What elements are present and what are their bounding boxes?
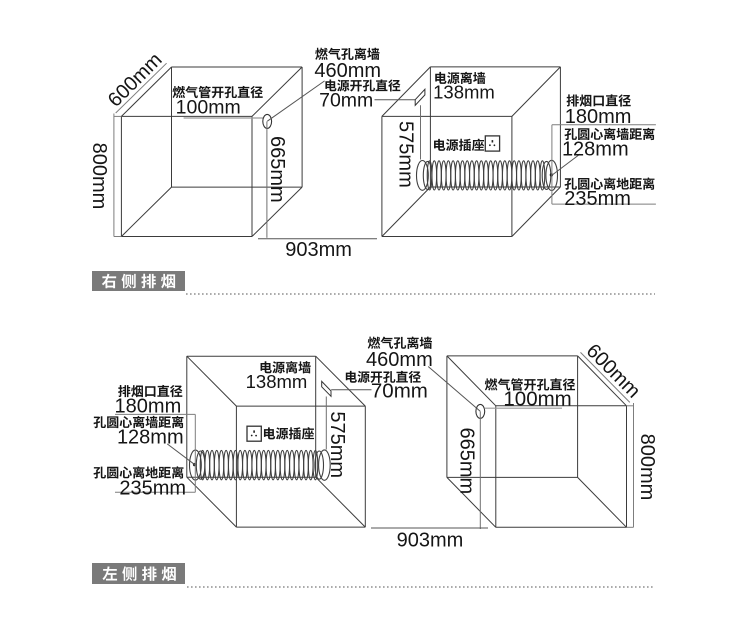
svg-text:800mm: 800mm	[88, 143, 110, 210]
svg-text:600mm: 600mm	[582, 340, 645, 403]
svg-text:100mm: 100mm	[503, 388, 571, 411]
svg-text:235mm: 235mm	[564, 188, 631, 210]
svg-text:575mm: 575mm	[326, 411, 348, 478]
svg-text:128mm: 128mm	[117, 427, 184, 449]
svg-text:903mm: 903mm	[397, 530, 464, 552]
svg-text:460mm: 460mm	[366, 349, 433, 371]
svg-text:903mm: 903mm	[285, 239, 352, 261]
svg-text:70mm: 70mm	[371, 380, 428, 403]
svg-text:180mm: 180mm	[565, 106, 632, 128]
svg-text:800mm: 800mm	[636, 434, 658, 501]
svg-text:138mm: 138mm	[433, 82, 495, 103]
svg-text:100mm: 100mm	[176, 97, 241, 119]
svg-text:128mm: 128mm	[562, 138, 629, 160]
svg-text:70mm: 70mm	[319, 90, 373, 112]
svg-text:665mm: 665mm	[266, 136, 288, 203]
svg-text:138mm: 138mm	[246, 371, 308, 392]
svg-text:460mm: 460mm	[314, 60, 381, 82]
svg-text:665mm: 665mm	[456, 427, 478, 494]
svg-text:235mm: 235mm	[119, 478, 186, 500]
svg-text:180mm: 180mm	[115, 395, 182, 417]
svg-text:575mm: 575mm	[395, 121, 417, 188]
